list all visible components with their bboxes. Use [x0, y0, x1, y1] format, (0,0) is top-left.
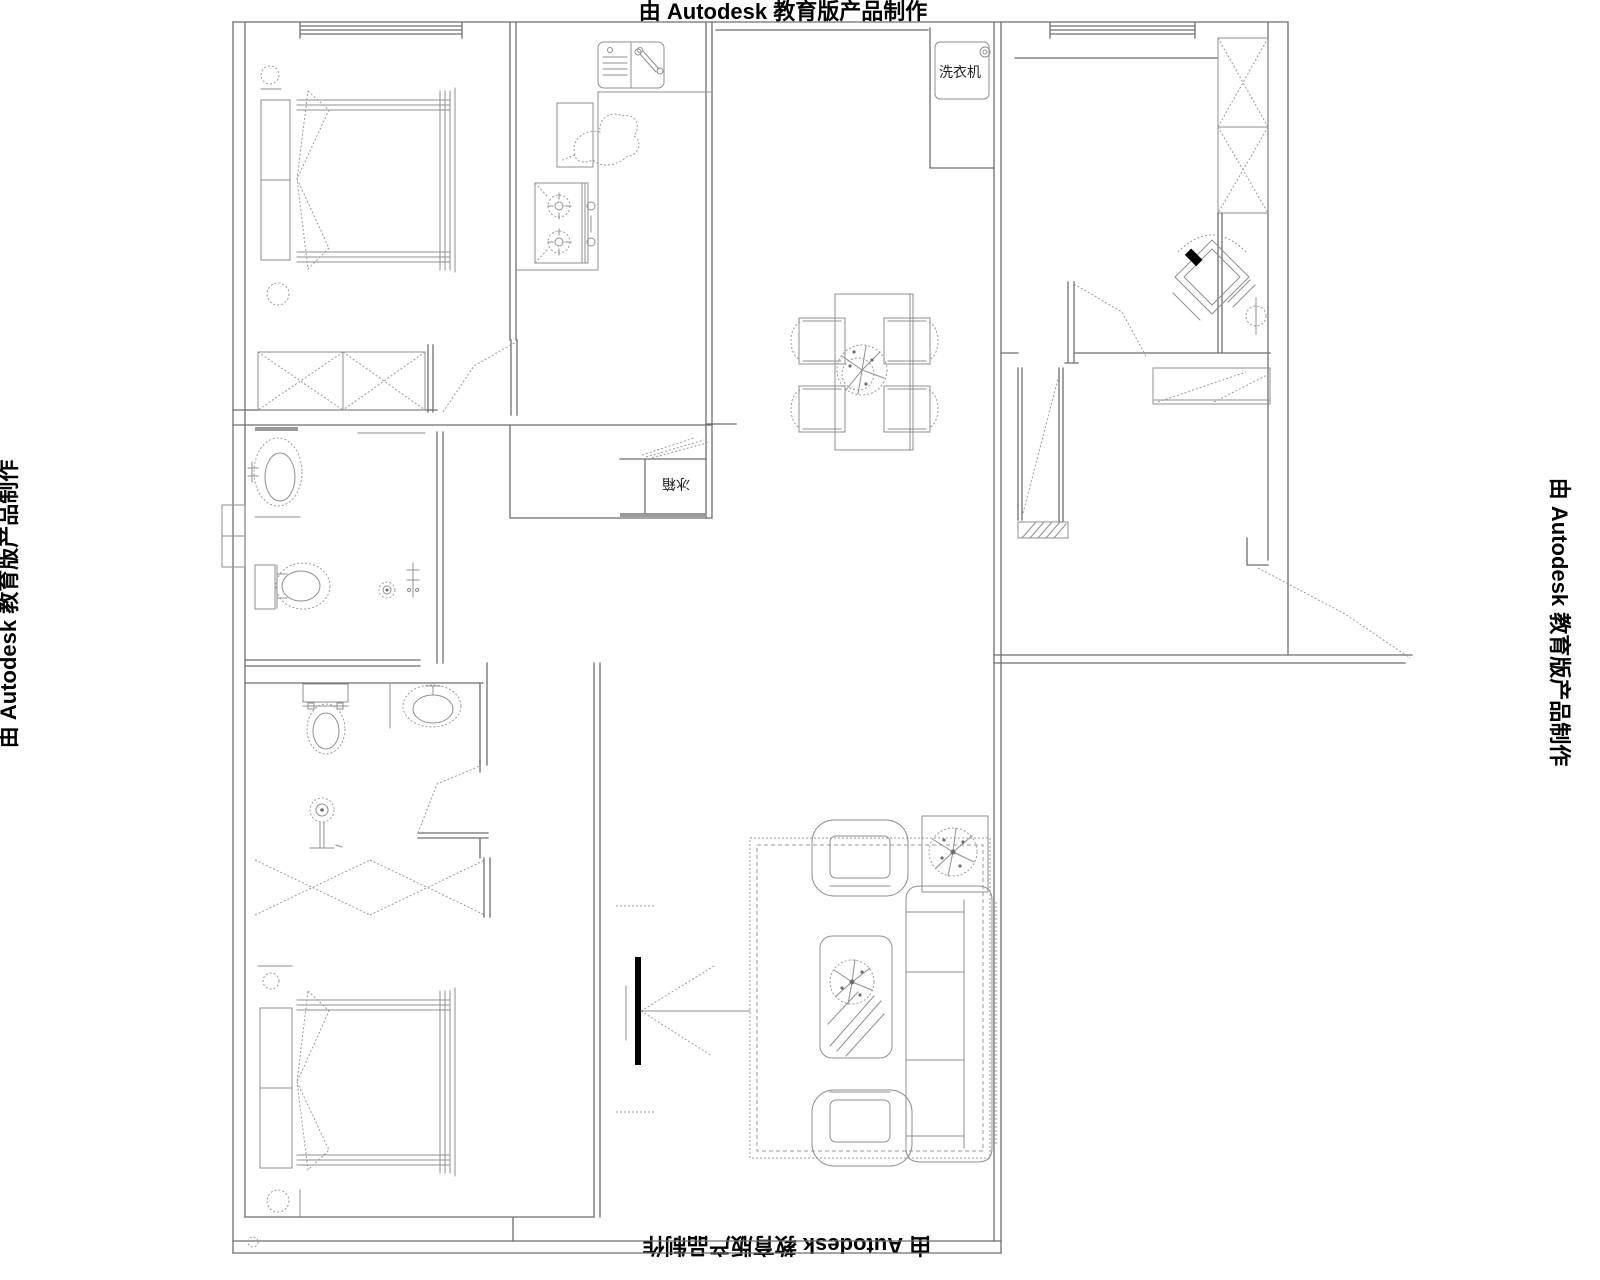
watermark-bottom: 由 Autodesk 教育版产品制作: [643, 1233, 931, 1258]
bed-2: [260, 988, 455, 1176]
watermark-left-text: 由 Autodesk 教育版产品制作: [0, 460, 21, 748]
cad-canvas: 由 Autodesk 教育版产品制作 由 Autodesk 教育版产品制作 由 …: [0, 0, 1600, 1280]
watermark-bottom-text: 由 Autodesk 教育版产品制作: [643, 1233, 931, 1258]
floor-plan-svg: 由 Autodesk 教育版产品制作 由 Autodesk 教育版产品制作 由 …: [0, 0, 1600, 1280]
swivel-chair: [1173, 235, 1255, 320]
washing-machine: 洗衣机: [935, 42, 990, 99]
kitchen-sink: [598, 42, 664, 88]
corner-table-plant: [922, 816, 988, 892]
coffee-table: [820, 936, 892, 1058]
shoe-cabinet: [1153, 368, 1270, 404]
zigzag-wardrobe-bedroom2: [255, 858, 490, 917]
balcony-door-fan: [616, 906, 750, 1112]
door-bedroom1: [443, 340, 517, 415]
floor-drain: [379, 582, 395, 598]
window-top-right: [1050, 22, 1195, 38]
walls: [233, 22, 1412, 1253]
closet-sliding-door: [1018, 368, 1063, 522]
wardrobe-top-right: [1218, 38, 1268, 352]
bedside-lamps-1: [261, 66, 289, 305]
mixer-symbol: [407, 563, 419, 597]
bed-1: [261, 88, 455, 272]
gas-stove: [535, 183, 595, 263]
refrigerator-box: 冰箱: [620, 438, 710, 513]
kitchen-counter: [516, 92, 712, 270]
door-room-top-right: [1065, 282, 1147, 363]
wall-hatch-stub: [1018, 522, 1068, 538]
toilet-1: [255, 563, 330, 609]
watermark-right-text: 由 Autodesk 教育版产品制作: [1547, 478, 1572, 766]
wash-basin-2: [390, 683, 461, 728]
watermark-top: 由 Autodesk 教育版产品制作: [639, 0, 927, 24]
door-bathroom2: [418, 760, 488, 838]
wash-basin-1: [248, 438, 302, 517]
watermark-left: 由 Autodesk 教育版产品制作: [0, 460, 21, 748]
washing-machine-label: 洗衣机: [939, 64, 981, 80]
toilet-2: [303, 684, 348, 754]
window-bedroom1: [300, 22, 462, 38]
dining-chairs: [791, 318, 938, 432]
wardrobe-bedroom1: [258, 345, 433, 412]
armchair-top: [812, 820, 908, 896]
refrigerator-label: 冰箱: [662, 476, 690, 492]
watermark-right: 由 Autodesk 教育版产品制作: [1547, 478, 1572, 766]
shower-head: [310, 798, 342, 848]
door-entry-right: [1258, 568, 1410, 658]
floor-lamp: [1246, 298, 1266, 334]
armchair-bottom: [812, 1090, 912, 1166]
watermark-top-text: 由 Autodesk 教育版产品制作: [639, 0, 927, 24]
